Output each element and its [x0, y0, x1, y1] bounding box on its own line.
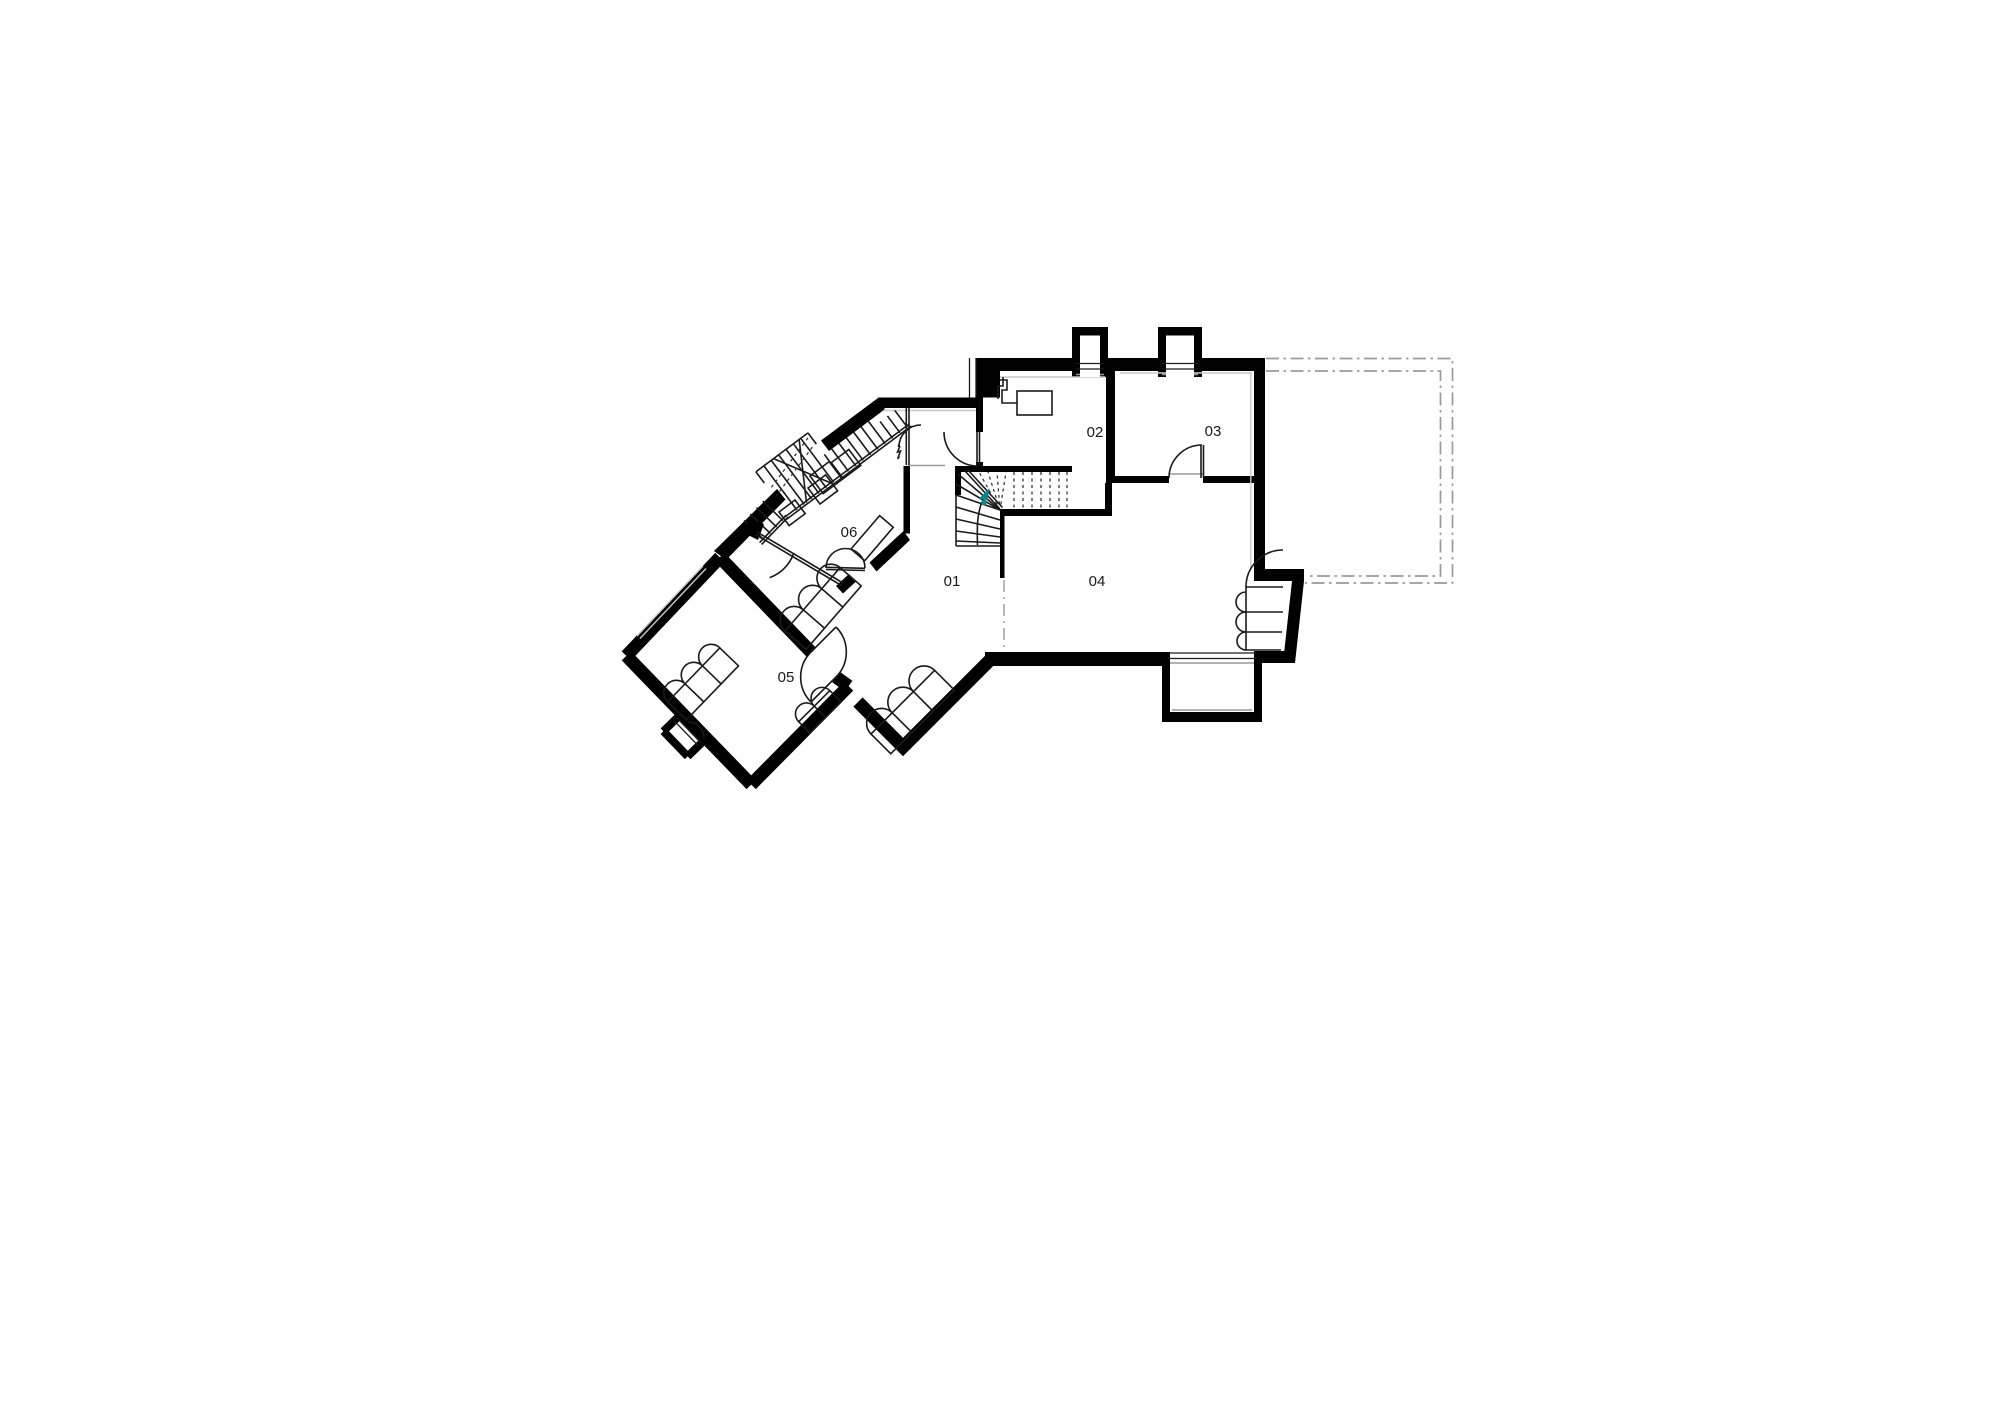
- svg-text:05: 05: [778, 669, 795, 686]
- svg-text:02: 02: [1087, 424, 1104, 441]
- svg-text:01: 01: [944, 573, 961, 590]
- svg-text:04: 04: [1089, 573, 1106, 590]
- svg-text:06: 06: [841, 524, 858, 541]
- svg-text:03: 03: [1205, 423, 1222, 440]
